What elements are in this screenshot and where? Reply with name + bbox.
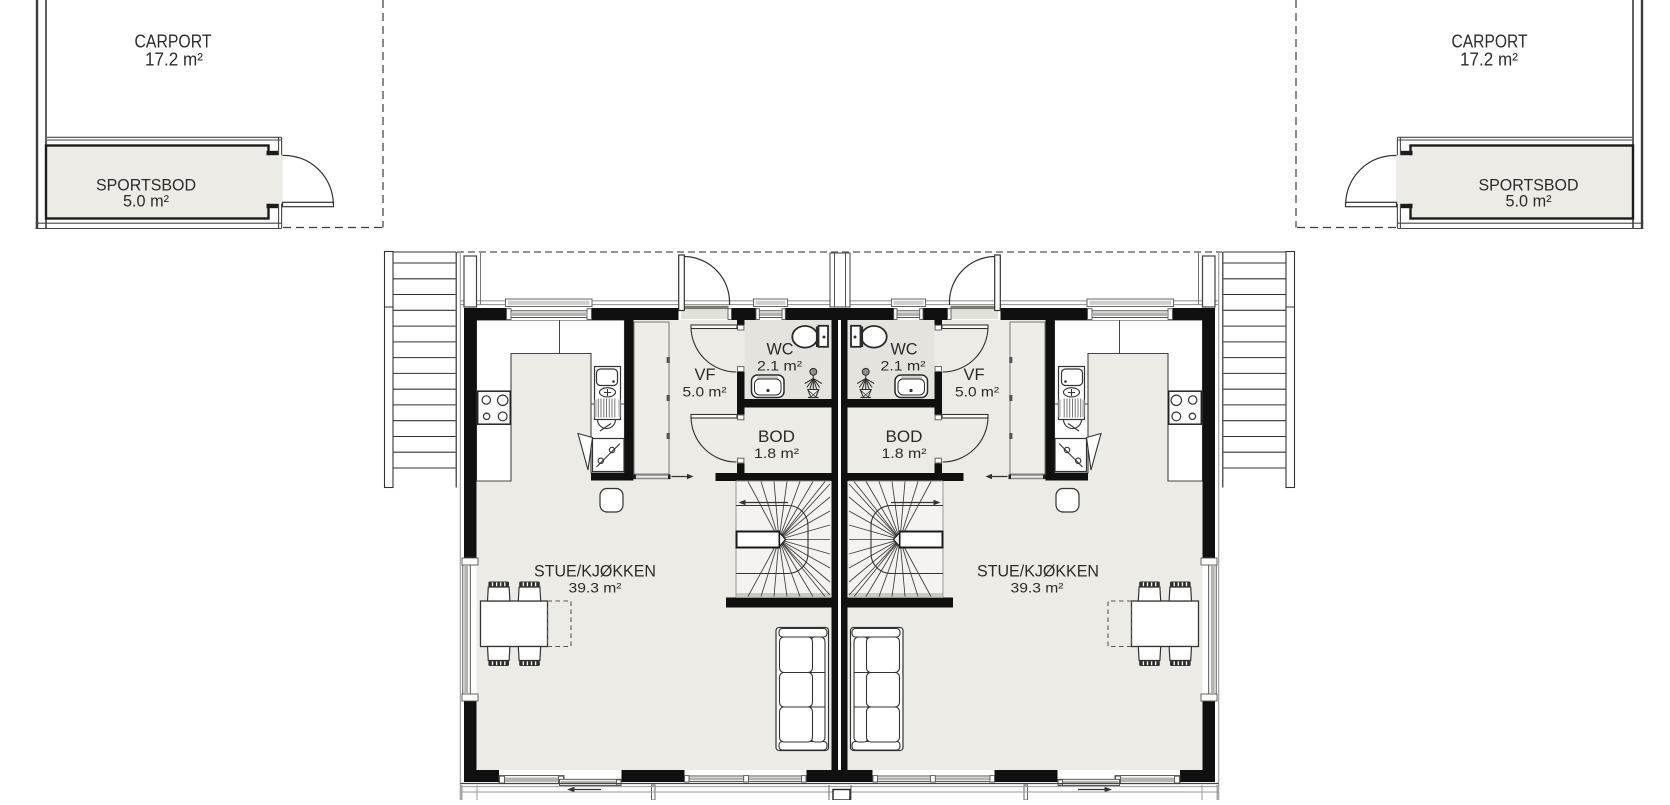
- svg-text:WC: WC: [767, 340, 794, 359]
- svg-text:1.8 m²: 1.8 m²: [882, 445, 927, 461]
- svg-text:1.8 m²: 1.8 m²: [754, 445, 799, 461]
- svg-text:39.3 m²: 39.3 m²: [569, 580, 622, 596]
- svg-text:BOD: BOD: [758, 427, 795, 446]
- svg-text:BOD: BOD: [886, 427, 923, 446]
- svg-text:VF: VF: [695, 365, 716, 384]
- svg-text:17.2 m²: 17.2 m²: [1460, 50, 1518, 70]
- svg-text:WC: WC: [891, 340, 918, 359]
- svg-text:5.0 m²: 5.0 m²: [1506, 193, 1553, 211]
- svg-text:39.3 m²: 39.3 m²: [1011, 580, 1064, 596]
- svg-text:2.1 m²: 2.1 m²: [757, 358, 802, 374]
- svg-text:VF: VF: [964, 365, 985, 384]
- svg-text:5.0 m²: 5.0 m²: [955, 384, 999, 400]
- svg-text:CARPORT: CARPORT: [1452, 32, 1528, 52]
- svg-text:STUE/KJØKKEN: STUE/KJØKKEN: [534, 562, 656, 581]
- svg-text:17.2 m²: 17.2 m²: [145, 50, 203, 70]
- svg-text:2.1 m²: 2.1 m²: [881, 358, 926, 374]
- svg-text:5.0 m²: 5.0 m²: [123, 193, 170, 211]
- svg-text:STUE/KJØKKEN: STUE/KJØKKEN: [977, 562, 1099, 581]
- svg-text:CARPORT: CARPORT: [135, 32, 212, 52]
- svg-text:5.0 m²: 5.0 m²: [683, 384, 727, 400]
